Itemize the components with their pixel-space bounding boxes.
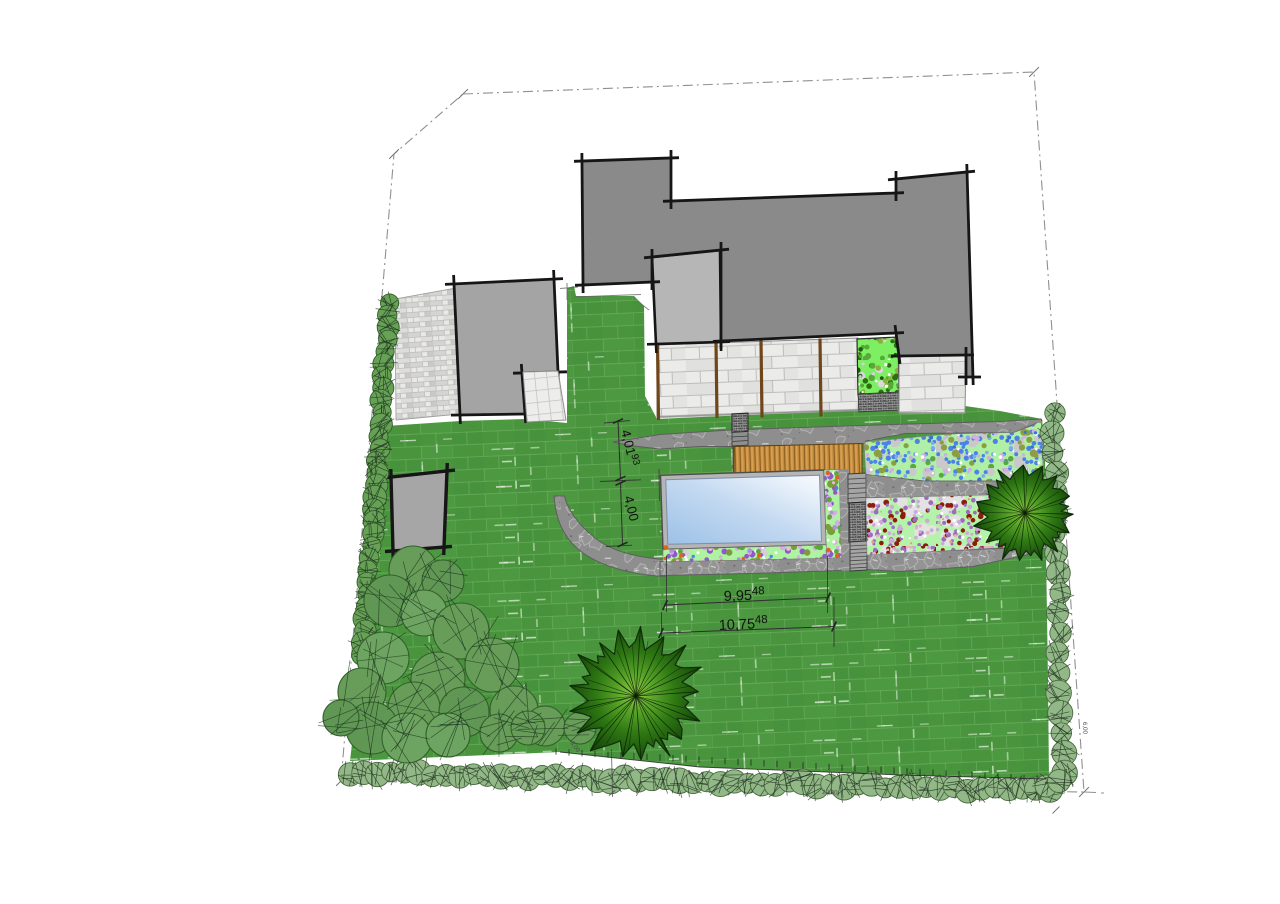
svg-text:29,00: 29,00 [822,789,838,797]
svg-text:6,00: 6,00 [1081,722,1088,735]
